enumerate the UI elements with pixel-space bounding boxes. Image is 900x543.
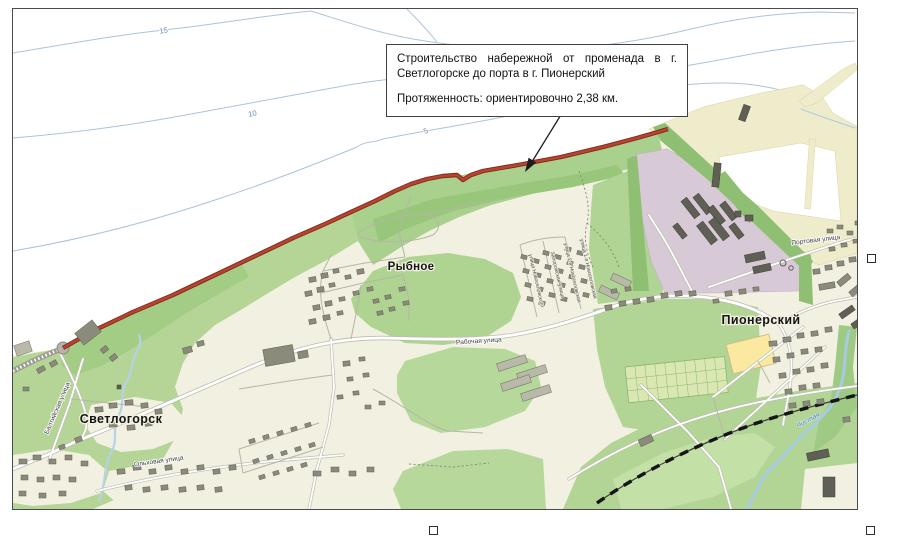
building — [21, 475, 28, 480]
building — [389, 307, 396, 312]
building — [797, 333, 804, 339]
building — [803, 401, 810, 407]
building — [825, 327, 832, 333]
annotation-box: Строительство набережной от променада в … — [386, 44, 688, 117]
building — [353, 291, 360, 296]
building — [605, 305, 613, 311]
building — [39, 493, 46, 498]
building — [19, 459, 27, 464]
building — [825, 265, 832, 271]
building — [179, 487, 186, 493]
building — [181, 469, 188, 475]
building — [853, 239, 857, 244]
building — [69, 477, 76, 482]
building — [165, 465, 172, 471]
building — [305, 290, 313, 296]
building — [365, 405, 371, 409]
building — [325, 300, 333, 306]
building — [349, 471, 356, 476]
building — [339, 297, 346, 302]
sand-spit — [799, 63, 857, 107]
annotation-text-line1: Строительство набережной от променада в … — [397, 52, 677, 82]
building — [141, 403, 148, 409]
building — [149, 469, 156, 475]
building — [197, 485, 204, 491]
building — [357, 268, 365, 274]
building — [821, 363, 828, 369]
building — [143, 487, 150, 493]
building — [739, 289, 746, 295]
building — [373, 299, 380, 304]
building — [49, 459, 56, 464]
building — [837, 225, 843, 229]
building — [125, 485, 132, 491]
building — [829, 247, 835, 252]
building — [313, 304, 321, 310]
building — [843, 417, 850, 423]
building — [309, 276, 317, 282]
building — [745, 215, 753, 221]
building — [725, 291, 732, 297]
building — [689, 291, 697, 297]
depth-label-10: 10 — [247, 108, 257, 119]
building — [753, 287, 759, 292]
building — [19, 491, 26, 496]
building — [213, 469, 220, 475]
building — [801, 349, 808, 355]
building — [117, 385, 121, 389]
building — [611, 289, 617, 294]
building — [813, 269, 820, 275]
building — [345, 275, 352, 280]
building — [385, 295, 392, 300]
building — [625, 287, 631, 292]
depth-label-15: 15 — [159, 25, 169, 35]
building — [837, 261, 844, 267]
building — [59, 491, 66, 496]
building — [773, 357, 780, 363]
building — [735, 211, 741, 217]
building — [855, 221, 857, 225]
building — [197, 465, 204, 471]
building — [619, 301, 627, 307]
building — [785, 389, 792, 395]
building — [827, 229, 833, 233]
city-label-pionersky: Пионерский — [721, 313, 800, 327]
building — [329, 283, 336, 288]
building — [53, 475, 60, 480]
resize-handle-bottom[interactable] — [429, 526, 438, 535]
building — [117, 469, 125, 475]
building — [789, 403, 796, 409]
building — [399, 287, 406, 292]
building — [333, 269, 340, 274]
building — [337, 395, 343, 400]
building — [37, 477, 44, 482]
building — [647, 297, 655, 303]
building — [841, 243, 847, 248]
depth-contour — [407, 9, 437, 42]
building — [403, 301, 410, 306]
building — [313, 471, 321, 476]
building — [323, 314, 331, 320]
city-label-rybnoe: Рыбное — [388, 261, 435, 273]
building — [359, 357, 365, 362]
building — [793, 369, 800, 375]
building — [65, 455, 72, 460]
building — [675, 291, 683, 297]
building — [297, 350, 308, 359]
document-page: { "annotation_box": { "paragraph1": "Стр… — [0, 0, 900, 543]
building — [713, 299, 719, 304]
building — [367, 467, 374, 472]
map-image[interactable]: 15 10 5 Рыбное Светлогорск Пионерский По… — [12, 8, 858, 510]
building — [331, 467, 339, 472]
building — [823, 477, 835, 497]
building — [125, 400, 133, 406]
building — [161, 485, 168, 491]
building — [815, 347, 822, 353]
building — [337, 311, 344, 316]
building — [367, 287, 374, 292]
building — [799, 385, 806, 391]
building — [317, 286, 325, 292]
building — [109, 403, 117, 409]
resize-handle-right[interactable] — [867, 254, 876, 263]
annotation-text-line2: Протяженность: ориентировочно 2,38 км. — [397, 92, 677, 107]
building — [23, 387, 29, 391]
building — [353, 391, 359, 396]
building — [215, 487, 222, 493]
building — [377, 311, 384, 316]
building — [807, 367, 814, 373]
building — [321, 272, 329, 278]
building — [817, 399, 824, 405]
building — [33, 455, 41, 460]
building — [379, 401, 385, 405]
building — [813, 383, 820, 389]
resize-handle-bottom-right[interactable] — [866, 526, 875, 535]
building — [779, 373, 786, 379]
building — [811, 331, 818, 337]
building — [783, 337, 791, 343]
building — [847, 231, 853, 235]
building — [849, 257, 856, 263]
building — [343, 361, 350, 367]
building — [363, 373, 369, 378]
city-label-svetlogorsk: Светлогорск — [80, 412, 163, 426]
building — [309, 318, 317, 324]
building — [81, 461, 88, 466]
building — [633, 299, 641, 305]
building — [229, 465, 236, 471]
building — [769, 341, 777, 347]
building — [661, 293, 669, 299]
building — [787, 353, 794, 359]
building — [347, 377, 353, 382]
